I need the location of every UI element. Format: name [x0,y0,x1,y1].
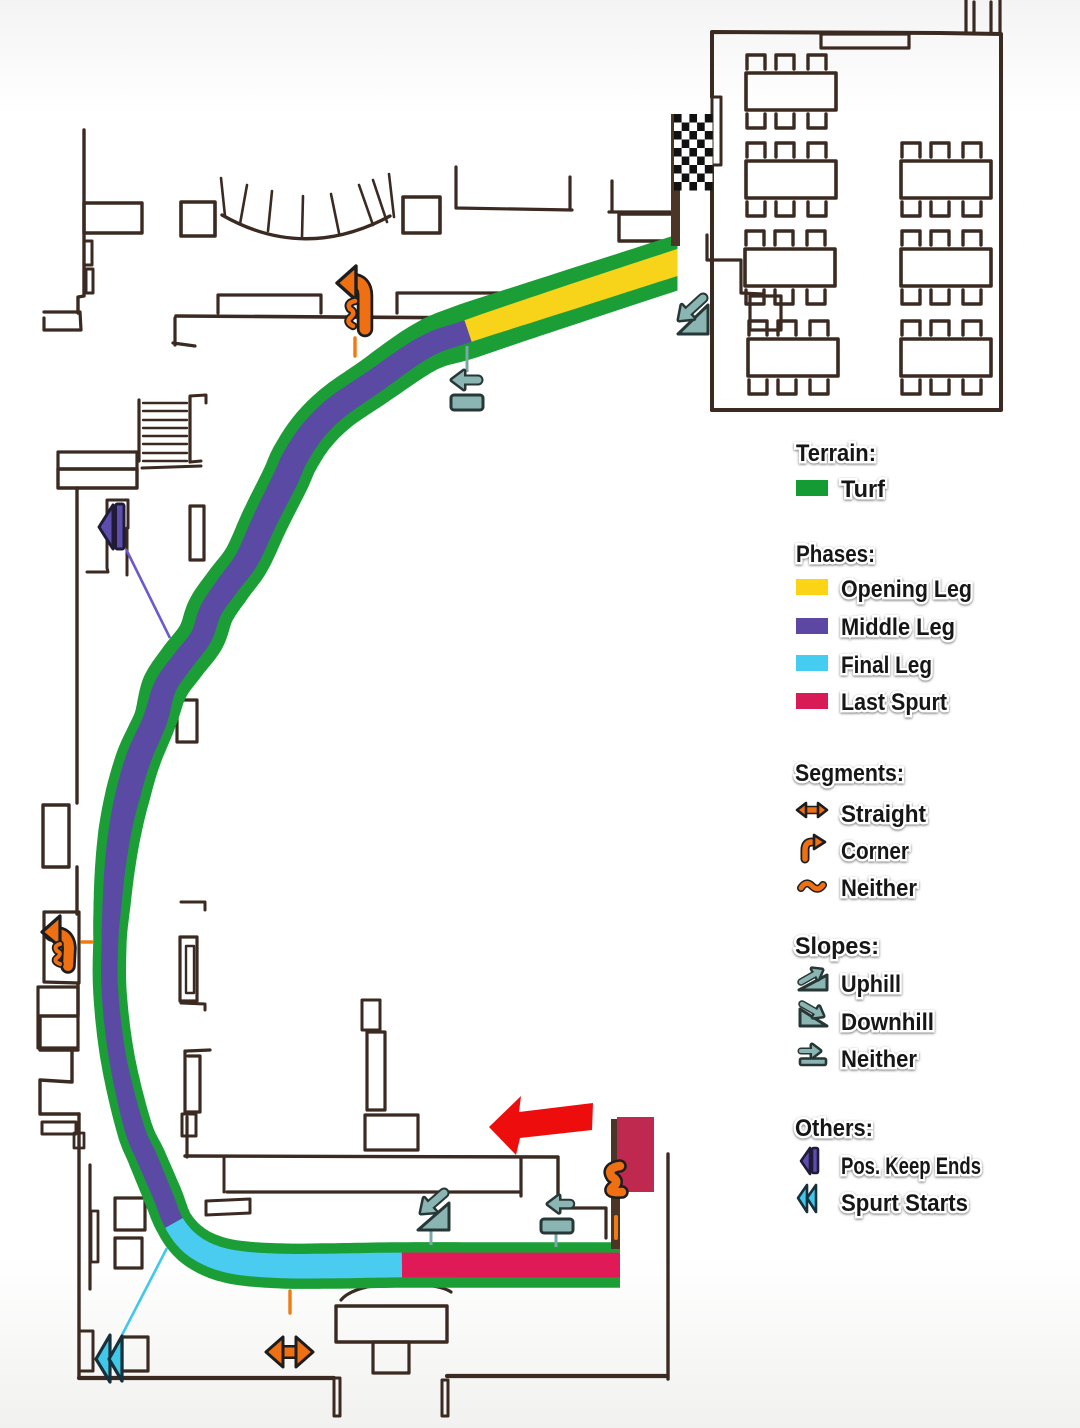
svg-text:Spurt Starts: Spurt Starts [841,1190,968,1217]
svg-text:Straight: Straight [841,801,926,828]
svg-text:Turf: Turf [841,476,886,503]
svg-text:Others:: Others: [795,1115,873,1142]
svg-text:Final Leg: Final Leg [841,652,932,679]
svg-text:Middle Leg: Middle Leg [841,614,955,641]
svg-text:Segments:: Segments: [795,760,904,787]
svg-text:Slopes:: Slopes: [795,933,879,960]
svg-text:Last Spurt: Last Spurt [841,689,947,716]
svg-text:Neither: Neither [841,1046,917,1073]
svg-text:Phases:: Phases: [796,541,875,568]
svg-text:Opening Leg: Opening Leg [841,576,972,603]
svg-text:Terrain:: Terrain: [796,440,876,467]
svg-text:Downhill: Downhill [841,1009,934,1036]
svg-text:Pos. Keep Ends: Pos. Keep Ends [841,1153,981,1180]
svg-text:Neither: Neither [841,875,917,902]
svg-text:Uphill: Uphill [841,971,901,998]
svg-text:Corner: Corner [841,838,909,865]
